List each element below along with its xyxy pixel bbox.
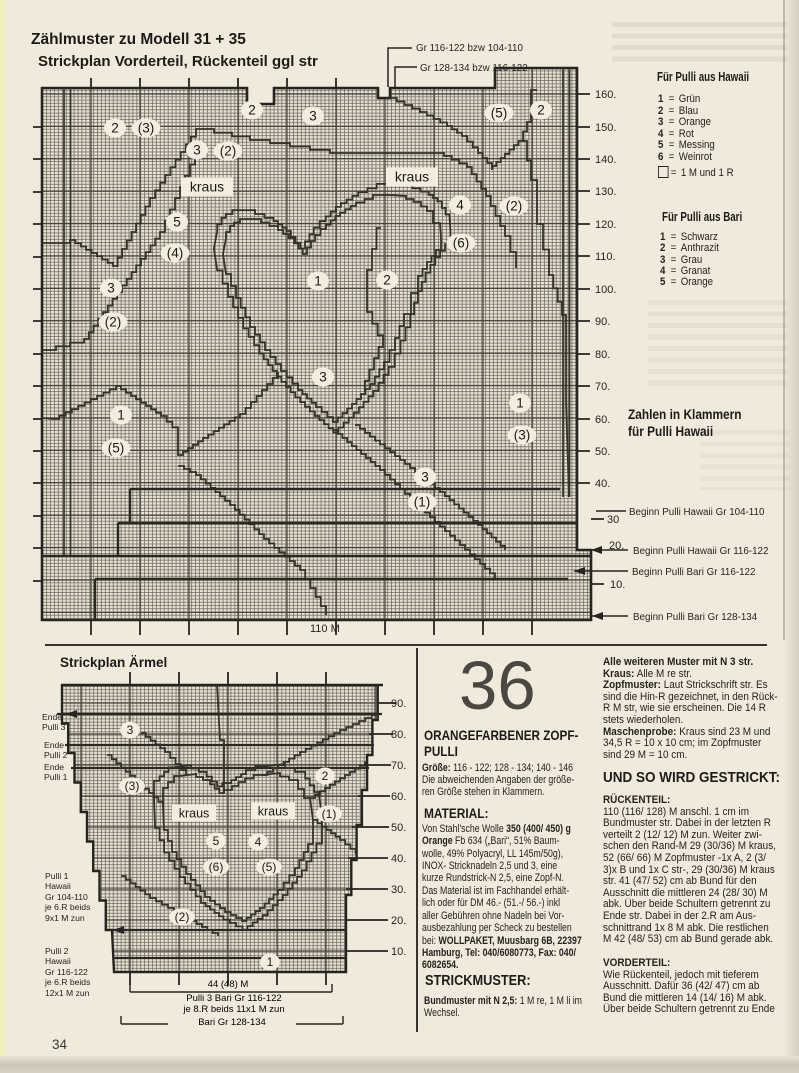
svg-text:50.: 50. [391, 822, 406, 834]
svg-text:70.: 70. [595, 381, 610, 393]
svg-text:(2): (2) [220, 143, 237, 158]
svg-text:80.: 80. [391, 729, 406, 741]
svg-text:kraus: kraus [179, 807, 210, 821]
svg-text:3: 3 [107, 280, 115, 295]
svg-text:1: 1 [516, 395, 524, 410]
svg-text:(3): (3) [514, 427, 531, 442]
svg-text:(6): (6) [453, 235, 470, 250]
svg-text:(2): (2) [175, 910, 190, 924]
svg-text:50.: 50. [595, 446, 610, 458]
svg-text:kraus: kraus [190, 179, 224, 195]
svg-text:Gr 128-134 bzw 116-122: Gr 128-134 bzw 116-122 [420, 63, 528, 74]
svg-text:2: 2 [322, 769, 329, 783]
svg-text:140.: 140. [595, 154, 616, 166]
svg-text:1: 1 [117, 407, 125, 422]
svg-text:160.: 160. [595, 89, 616, 101]
svg-text:kraus: kraus [258, 805, 289, 819]
svg-text:1: 1 [267, 955, 274, 969]
svg-text:30.: 30. [391, 884, 406, 896]
svg-text:(2): (2) [506, 198, 523, 213]
svg-text:(5): (5) [108, 440, 125, 455]
svg-text:Beginn Pulli Hawaii Gr 116-122: Beginn Pulli Hawaii Gr 116-122 [633, 546, 768, 557]
svg-text:2: 2 [383, 272, 391, 287]
svg-text:110 M: 110 M [310, 623, 340, 635]
svg-text:(2): (2) [105, 314, 122, 329]
svg-text:90.: 90. [595, 316, 610, 328]
svg-text:70.: 70. [391, 760, 406, 772]
svg-text:2: 2 [537, 102, 545, 117]
svg-text:3: 3 [193, 142, 201, 157]
svg-text:1: 1 [314, 273, 322, 288]
svg-text:Beginn Pulli Hawaii Gr 104-110: Beginn Pulli Hawaii Gr 104-110 [629, 507, 765, 518]
svg-text:40.: 40. [391, 853, 406, 865]
svg-text:kraus: kraus [395, 169, 429, 185]
svg-text:30: 30 [607, 514, 619, 526]
svg-text:3: 3 [309, 108, 317, 123]
svg-text:5: 5 [173, 214, 181, 229]
svg-text:Beginn Pulli Bari Gr 116-122: Beginn Pulli Bari Gr 116-122 [632, 567, 755, 578]
svg-text:Gr 116-122 bzw 104-110: Gr 116-122 bzw 104-110 [416, 43, 523, 54]
svg-text:3: 3 [421, 469, 429, 484]
svg-text:80.: 80. [595, 349, 610, 361]
svg-text:(3): (3) [138, 120, 155, 135]
svg-text:10.: 10. [391, 946, 406, 958]
svg-text:100.: 100. [595, 284, 616, 296]
svg-text:110.: 110. [595, 251, 616, 263]
svg-text:(5): (5) [491, 105, 508, 120]
svg-text:120.: 120. [595, 219, 616, 231]
svg-text:20.: 20. [391, 915, 406, 927]
svg-text:130.: 130. [595, 186, 616, 198]
svg-text:(1): (1) [414, 494, 431, 509]
svg-text:(5): (5) [262, 860, 277, 874]
svg-text:2: 2 [248, 102, 256, 117]
svg-text:40.: 40. [595, 478, 610, 490]
svg-text:60.: 60. [391, 791, 406, 803]
svg-text:90.: 90. [391, 698, 406, 710]
svg-text:4: 4 [456, 197, 464, 212]
svg-text:(6): (6) [209, 860, 224, 874]
svg-text:4: 4 [255, 835, 262, 849]
svg-text:10.: 10. [610, 579, 625, 591]
svg-text:150.: 150. [595, 122, 616, 134]
svg-text:3: 3 [319, 369, 327, 384]
svg-text:Beginn Pulli Bari Gr 128-134: Beginn Pulli Bari Gr 128-134 [633, 612, 758, 623]
svg-text:60.: 60. [595, 414, 610, 426]
svg-text:3: 3 [127, 723, 134, 737]
svg-text:5: 5 [213, 834, 220, 848]
svg-text:(1): (1) [322, 807, 337, 821]
svg-text:2: 2 [111, 120, 119, 135]
svg-text:(3): (3) [125, 779, 140, 793]
svg-text:(4): (4) [167, 245, 184, 260]
